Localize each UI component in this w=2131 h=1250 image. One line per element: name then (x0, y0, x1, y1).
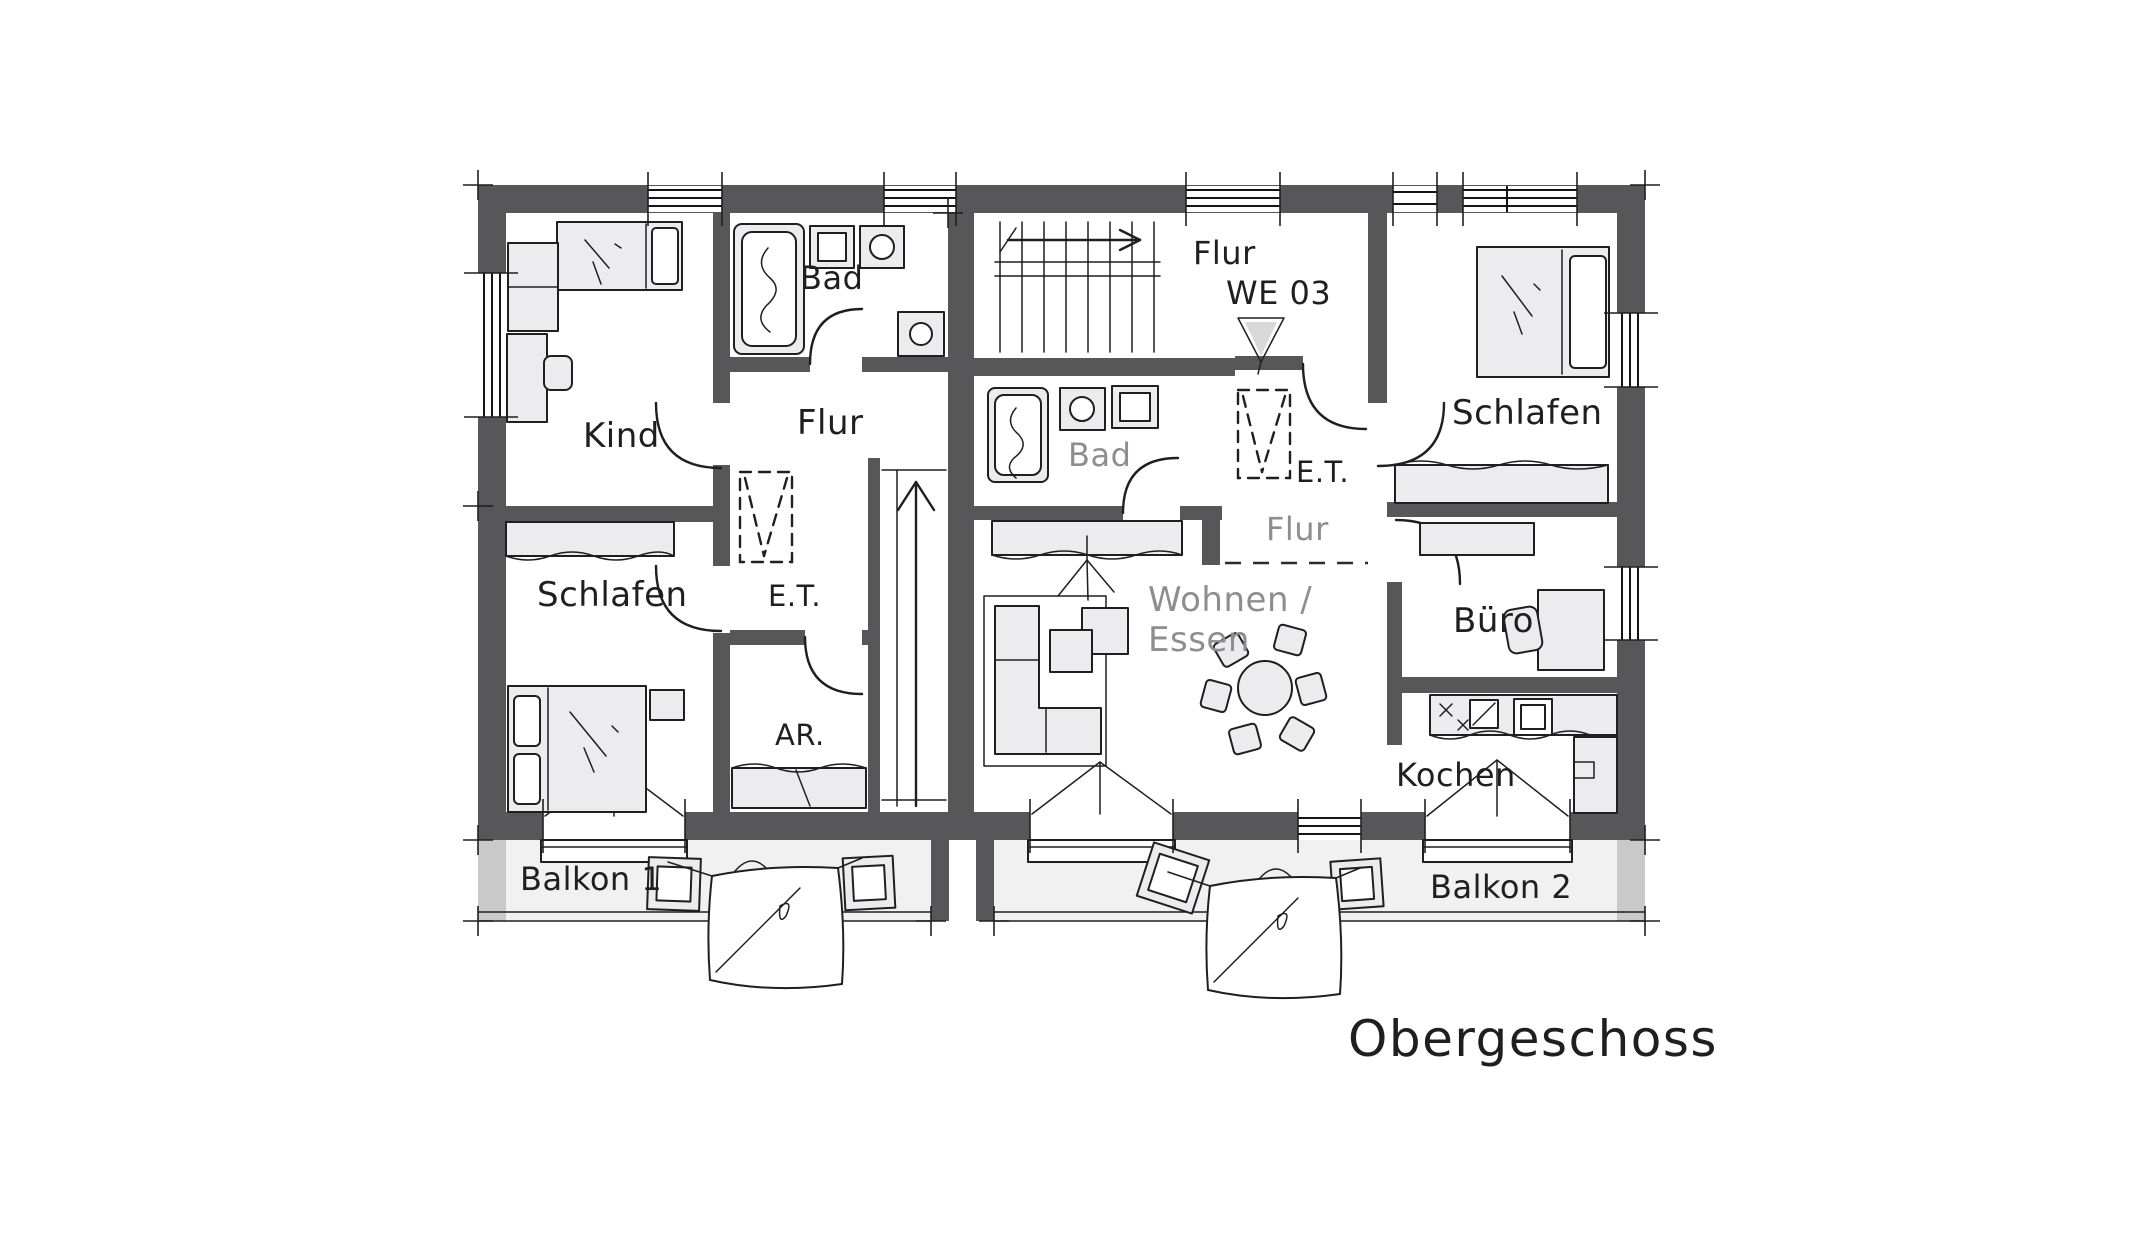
window-top-4 (1393, 186, 1437, 212)
window-top-3 (1186, 186, 1280, 212)
wardrobe-dashed-left (740, 472, 792, 562)
room-label-flur-left: Flur (797, 403, 864, 443)
floor-plan: Kind Bad Flur E.T. Schlafen AR. Balkon 1… (0, 0, 2131, 1250)
coffee-table-icon (1050, 630, 1092, 672)
room-label-essen: Essen (1148, 620, 1250, 660)
floor-plan-page: Kind Bad Flur E.T. Schlafen AR. Balkon 1… (0, 0, 2131, 1250)
kitchen-furniture (1430, 695, 1617, 813)
door-bad-left (810, 309, 862, 364)
room-label-schlafen-right: Schlafen (1452, 393, 1603, 433)
room-label-et-left: E.T. (768, 579, 821, 613)
stairs-upper-flight (995, 222, 1160, 352)
desk-icon (507, 334, 547, 422)
door-storage (805, 637, 862, 694)
door-schlafen-right (1378, 403, 1444, 466)
room-label-schlafen-left: Schlafen (537, 575, 688, 615)
room-label-balkon2: Balkon 2 (1430, 868, 1572, 906)
sideboard-icon (1395, 465, 1608, 503)
window-top-5 (1463, 186, 1577, 212)
room-label-wohnen: Wohnen / (1148, 580, 1312, 620)
room-label-flur-right: Flur (1266, 510, 1329, 548)
room-label-bad-right: Bad (1068, 436, 1131, 474)
room-label-kind: Kind (583, 416, 660, 456)
stairs-lower-strip (882, 470, 946, 806)
room-label-flur-we03: Flur (1193, 234, 1256, 272)
office-furniture (1420, 523, 1604, 670)
schlafen-left-furniture (506, 522, 684, 812)
room-label-bad-left: Bad (800, 259, 863, 297)
plan-title: Obergeschoss (1348, 1010, 1718, 1068)
wardrobe-dashed-right (1238, 390, 1290, 478)
unit-label-we03: WE 03 (1226, 274, 1331, 312)
nightstand-icon (650, 690, 684, 720)
room-label-balkon1: Balkon 1 (520, 860, 662, 898)
room-label-kochen: Kochen (1396, 756, 1516, 794)
balcony1-furniture (647, 856, 895, 988)
kitchen-counter-icon (1574, 737, 1617, 813)
shelf-icon (732, 768, 866, 808)
window-top-1 (648, 186, 722, 212)
door-entrance-we03 (1303, 364, 1366, 429)
wardrobe-icon (506, 522, 674, 556)
room-label-et-right: E.T. (1296, 455, 1349, 489)
room-label-ar: AR. (775, 718, 825, 752)
window-right-1 (1617, 313, 1645, 387)
room-label-buero: Büro (1453, 601, 1534, 641)
window-top-2 (884, 186, 956, 212)
kind-room-furniture (507, 222, 682, 422)
schlafen-right-furniture (1395, 247, 1609, 503)
attic-stair-arrow (898, 482, 934, 806)
stair-direction-arrow (1000, 228, 1140, 252)
door-kind (656, 403, 721, 468)
window-right-2 (1617, 567, 1645, 640)
window-bottom (1298, 812, 1361, 840)
storage-room-furniture (732, 764, 866, 808)
sideboard-icon (1420, 523, 1534, 555)
dining-table-icon (1238, 661, 1292, 715)
desk-icon (1538, 590, 1604, 670)
chair-icon (544, 356, 572, 390)
window-left (478, 273, 506, 417)
